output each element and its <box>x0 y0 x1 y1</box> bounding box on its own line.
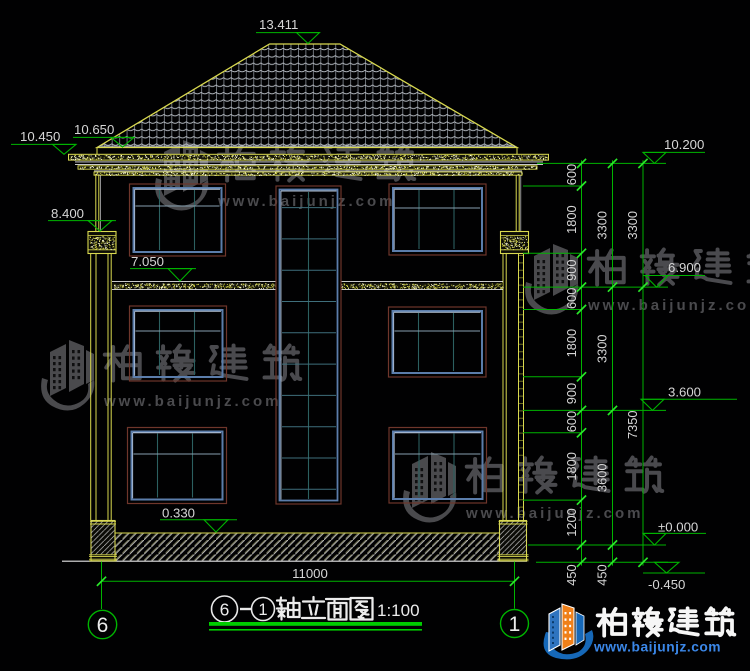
svg-text:600: 600 <box>564 411 579 432</box>
svg-text:www.baijunjz.com: www.baijunjz.com <box>465 505 643 522</box>
svg-text:±0.000: ±0.000 <box>658 520 698 535</box>
svg-text:1: 1 <box>509 613 521 636</box>
svg-text:13.411: 13.411 <box>259 17 298 32</box>
svg-text:1:100: 1:100 <box>377 601 420 620</box>
svg-text:600: 600 <box>564 288 579 309</box>
svg-text:0.330: 0.330 <box>162 506 195 521</box>
svg-text:7.050: 7.050 <box>131 254 164 269</box>
svg-text:11000: 11000 <box>292 566 328 581</box>
svg-text:10.450: 10.450 <box>20 129 60 144</box>
svg-text:600: 600 <box>564 164 579 185</box>
svg-text:1: 1 <box>258 601 267 619</box>
svg-text:1800: 1800 <box>564 452 579 480</box>
svg-text:8.400: 8.400 <box>51 206 84 221</box>
svg-text:6.900: 6.900 <box>668 260 701 275</box>
svg-text:3300: 3300 <box>595 211 610 239</box>
svg-text:www.baijunjz.com: www.baijunjz.com <box>593 640 721 655</box>
svg-text:900: 900 <box>564 260 579 281</box>
svg-text:1200: 1200 <box>564 508 579 536</box>
svg-text:3300: 3300 <box>625 211 640 239</box>
svg-text:1800: 1800 <box>564 205 579 233</box>
svg-text:450: 450 <box>595 564 610 585</box>
svg-text:450: 450 <box>564 564 579 585</box>
svg-text:6: 6 <box>220 600 230 620</box>
svg-text:900: 900 <box>564 383 579 404</box>
svg-text:7350: 7350 <box>625 410 640 438</box>
svg-text:www.baijunjz.com: www.baijunjz.com <box>103 393 281 410</box>
svg-text:3.600: 3.600 <box>668 385 701 400</box>
svg-text:6: 6 <box>97 614 109 637</box>
svg-text:3600: 3600 <box>595 463 610 491</box>
svg-text:1800: 1800 <box>564 329 579 357</box>
svg-text:-0.450: -0.450 <box>648 577 685 592</box>
svg-text:10.200: 10.200 <box>664 137 704 152</box>
svg-text:3300: 3300 <box>595 334 610 362</box>
svg-text:10.650: 10.650 <box>74 122 114 137</box>
svg-text:www.baijunjz.com: www.baijunjz.com <box>587 297 750 314</box>
